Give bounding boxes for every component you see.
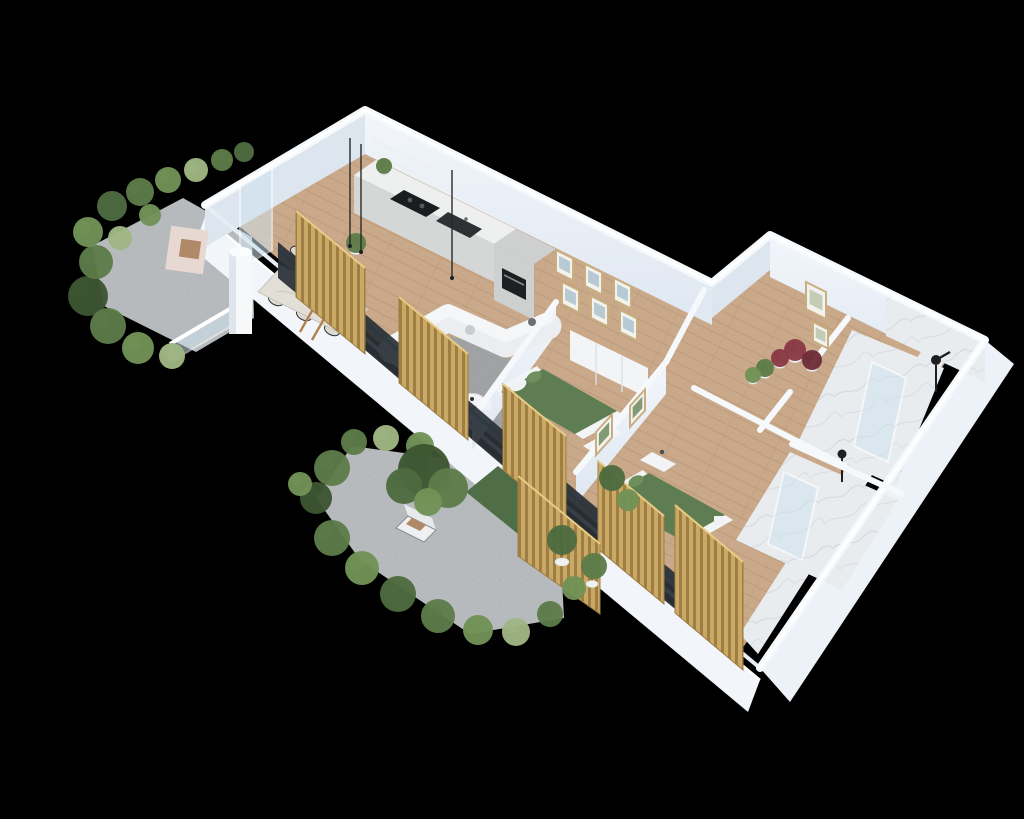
plant-highlight <box>425 603 440 618</box>
plant-highlight <box>787 342 797 352</box>
plant-highlight <box>551 529 565 543</box>
pendant-bulb <box>359 250 363 254</box>
armchair-cushion <box>179 239 201 260</box>
plant-highlight <box>391 473 407 489</box>
plant-highlight <box>540 604 552 616</box>
shower-head-2 <box>838 450 847 459</box>
plant-highlight <box>344 432 356 444</box>
plant-highlight <box>142 207 152 217</box>
plant-highlight <box>291 475 302 486</box>
render-stage <box>0 0 1024 819</box>
burner <box>420 204 425 209</box>
plant-highlight <box>158 170 170 182</box>
plant-highlight <box>773 351 781 359</box>
plant-highlight <box>95 313 111 329</box>
plant-highlight <box>565 579 576 590</box>
plant-highlight <box>237 145 246 154</box>
column-top <box>229 247 252 257</box>
plant-highlight <box>319 455 335 471</box>
pendant-bulb <box>450 276 454 280</box>
plant-highlight <box>506 622 519 635</box>
planter-pot <box>586 581 598 588</box>
plant-highlight <box>467 619 481 633</box>
plant-highlight <box>758 361 766 369</box>
column-shade <box>229 252 236 334</box>
floorplan-render <box>0 0 1024 819</box>
plant-highlight <box>111 229 122 240</box>
plant-highlight <box>77 221 91 235</box>
plant-highlight <box>376 428 388 440</box>
sofa-pillow <box>465 325 475 335</box>
plant-highlight <box>214 152 224 162</box>
burner <box>408 198 413 203</box>
plant-highlight <box>162 346 174 358</box>
plant-highlight <box>747 369 754 376</box>
plant-highlight <box>620 492 630 502</box>
planter-pot <box>555 558 569 566</box>
pendant-bulb <box>348 244 352 248</box>
bed2-nightstand <box>714 516 724 525</box>
desk-lamp <box>660 450 664 454</box>
plant-highlight <box>385 581 401 597</box>
plant-highlight <box>418 492 431 505</box>
plant-highlight <box>602 468 614 480</box>
faucet <box>464 217 468 221</box>
plant-highlight <box>83 249 98 264</box>
plant-highlight <box>101 195 115 209</box>
plant-highlight <box>73 281 91 299</box>
plant-highlight <box>349 555 364 570</box>
plant-highlight <box>126 336 140 350</box>
plant-highlight <box>805 353 814 362</box>
table-decor <box>470 397 474 401</box>
plant-highlight <box>433 473 451 491</box>
plant-highlight <box>130 182 143 195</box>
plant-highlight <box>319 525 335 541</box>
sofa-throw <box>528 318 536 326</box>
plant-highlight <box>187 161 198 172</box>
plant-highlight <box>378 160 385 167</box>
plant-highlight <box>584 556 596 568</box>
